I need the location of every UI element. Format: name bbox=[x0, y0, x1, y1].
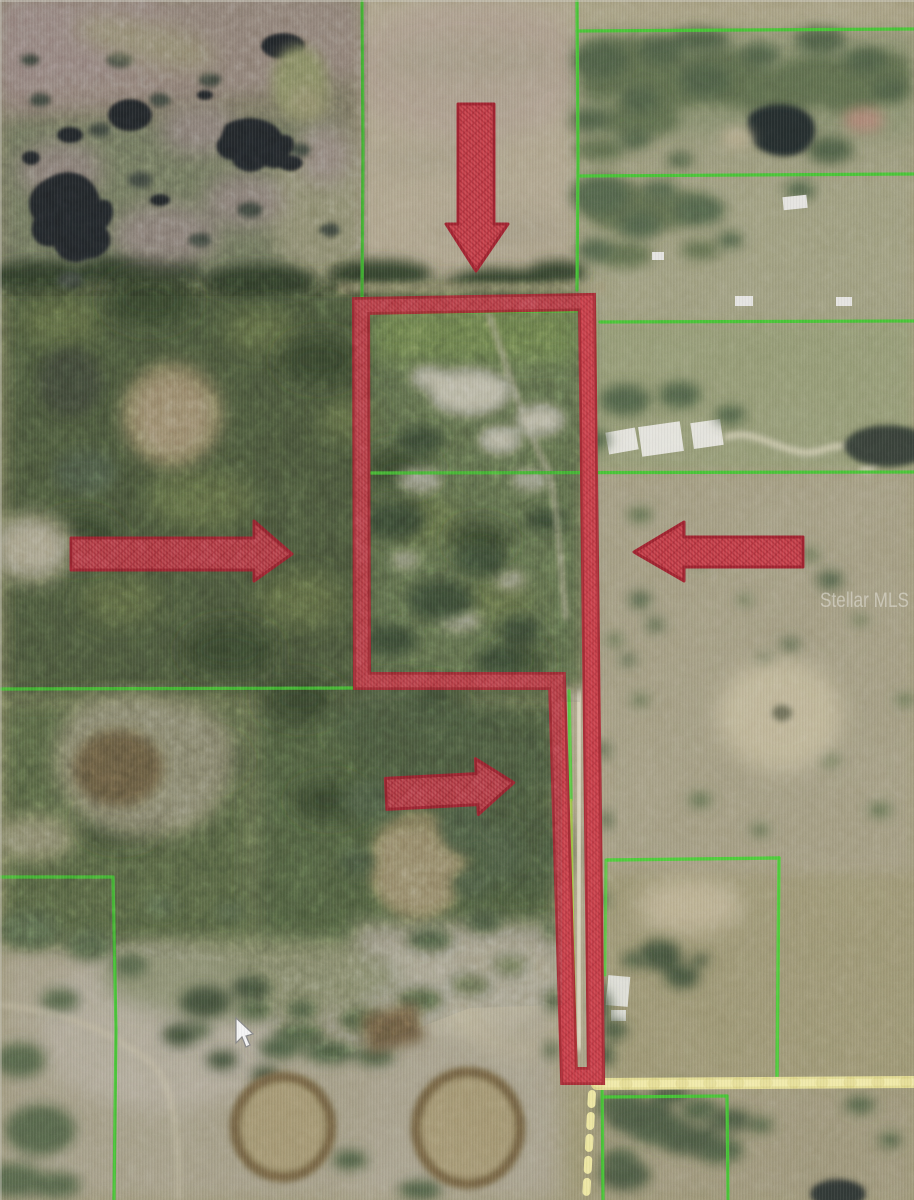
svg-text:Stellar MLS: Stellar MLS bbox=[820, 589, 909, 612]
